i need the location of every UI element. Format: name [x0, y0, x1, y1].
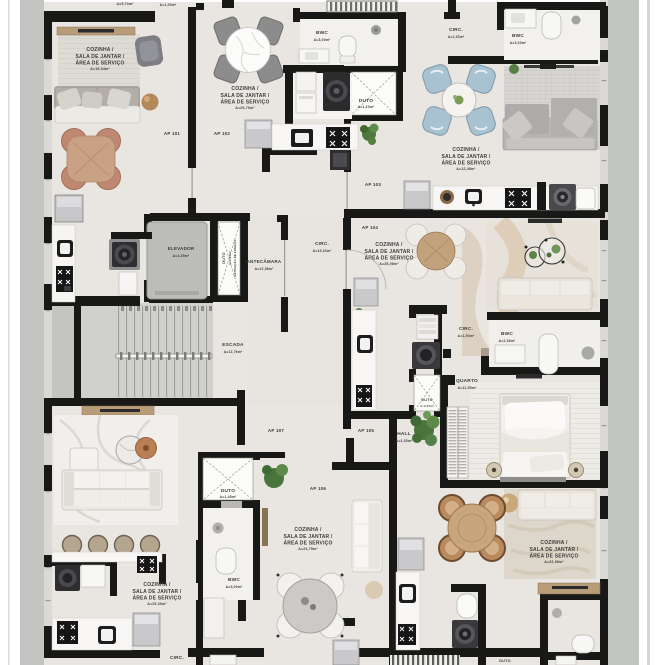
svg-text:CIRC.: CIRC.	[315, 241, 329, 247]
svg-text:A=11,55m²: A=11,55m²	[458, 386, 477, 390]
svg-text:HALL: HALL	[397, 431, 411, 437]
svg-text:A=23,75m²: A=23,75m²	[298, 547, 318, 551]
svg-text:A=3,00m²: A=3,00m²	[510, 41, 527, 45]
svg-text:A=3,00m²: A=3,00m²	[314, 38, 331, 42]
svg-text:ÁREA DE SERVIÇO: ÁREA DE SERVIÇO	[529, 553, 578, 560]
svg-text:BWC: BWC	[228, 577, 240, 583]
svg-text:ÁREA DE SERVIÇO: ÁREA DE SERVIÇO	[364, 255, 413, 262]
svg-text:A=12,76m²: A=12,76m²	[224, 350, 244, 354]
svg-text:ESCADA: ESCADA	[222, 342, 244, 348]
svg-text:A=1,50m²: A=1,50m²	[458, 334, 475, 338]
svg-text:AP 107: AP 107	[268, 428, 284, 433]
svg-text:DUTO: DUTO	[421, 398, 433, 402]
svg-text:ÁREA DE SERVIÇO: ÁREA DE SERVIÇO	[75, 60, 124, 67]
svg-text:COZINHA /: COZINHA /	[452, 147, 480, 153]
svg-text:A=1,48m²: A=1,48m²	[220, 495, 237, 499]
svg-text:CIRC.: CIRC.	[449, 27, 463, 33]
svg-text:SALA DE JANTAR /: SALA DE JANTAR /	[441, 154, 490, 160]
svg-text:AP 106: AP 106	[310, 486, 326, 491]
svg-text:SALA DE JANTAR /: SALA DE JANTAR /	[220, 93, 269, 99]
svg-text:COZINHA /: COZINHA /	[294, 527, 322, 533]
svg-text:DUTO: DUTO	[499, 659, 511, 663]
svg-text:AP 101: AP 101	[164, 131, 180, 136]
svg-text:A=2,30m²: A=2,30m²	[448, 35, 465, 39]
svg-text:CIRC.: CIRC.	[459, 326, 473, 332]
svg-text:A=1,00m²: A=1,00m²	[160, 3, 177, 7]
svg-text:BWC: BWC	[316, 30, 328, 36]
svg-text:A=22,06m²: A=22,06m²	[544, 560, 564, 564]
svg-text:A=12,36m²: A=12,36m²	[255, 267, 275, 271]
svg-text:ÁREA DE SERVIÇO: ÁREA DE SERVIÇO	[441, 160, 490, 167]
svg-text:BWC: BWC	[501, 331, 513, 337]
svg-text:AP 104: AP 104	[362, 225, 378, 230]
svg-text:AP 103: AP 103	[365, 182, 381, 187]
svg-text:COZINHA /: COZINHA /	[86, 47, 114, 53]
svg-text:COZINHA /: COZINHA /	[231, 86, 259, 92]
svg-text:A=12,48m²: A=12,48m²	[456, 167, 476, 171]
svg-text:SALA DE JANTAR /: SALA DE JANTAR /	[529, 547, 578, 553]
svg-text:A=2,36m²: A=2,36m²	[499, 339, 516, 343]
svg-text:ELEVADOR: ELEVADOR	[168, 246, 195, 251]
svg-text:BWC: BWC	[512, 33, 524, 39]
svg-text:DUTO: DUTO	[221, 488, 235, 494]
svg-text:A=1,23m²: A=1,23m²	[358, 105, 375, 109]
svg-text:DUTO: DUTO	[222, 252, 226, 264]
svg-text:DUTO: DUTO	[359, 98, 373, 104]
svg-text:A=15,34m²: A=15,34m²	[90, 67, 110, 71]
svg-text:A=2,25m²: A=2,25m²	[173, 254, 190, 258]
svg-text:A=29,70m²: A=29,70m²	[235, 106, 255, 110]
svg-text:ÁREA DE SERVIÇO: ÁREA DE SERVIÇO	[220, 99, 269, 106]
svg-text:ÁREA DE SERVIÇO: ÁREA DE SERVIÇO	[132, 595, 181, 602]
svg-text:A=25,30m²: A=25,30m²	[147, 602, 167, 606]
svg-text:A=2,35m²: A=2,35m²	[396, 439, 413, 443]
svg-text:A=5,73m²: A=5,73m²	[117, 2, 134, 6]
svg-text:ÁREA DE SERVIÇO: ÁREA DE SERVIÇO	[283, 540, 332, 547]
svg-text:ANTECÂMARA: ANTECÂMARA	[247, 258, 282, 264]
svg-text:EXTRAÇÃO DE FUMAÇA: EXTRAÇÃO DE FUMAÇA	[232, 240, 237, 277]
svg-text:SALA DE JANTAR /: SALA DE JANTAR /	[75, 54, 124, 60]
svg-text:AP 105: AP 105	[358, 428, 374, 433]
svg-text:QUARTO: QUARTO	[456, 378, 478, 384]
svg-text:SALA DE JANTAR /: SALA DE JANTAR /	[364, 249, 413, 255]
svg-text:COZINHA /: COZINHA /	[143, 582, 171, 588]
svg-text:CIRC.: CIRC.	[170, 655, 184, 661]
svg-text:A=2,25m²: A=2,25m²	[228, 251, 232, 265]
svg-text:COZINHA /: COZINHA /	[375, 242, 403, 248]
svg-text:SALA DE JANTAR /: SALA DE JANTAR /	[283, 534, 332, 540]
svg-text:AP 102: AP 102	[214, 131, 230, 136]
svg-text:A=15,23m²: A=15,23m²	[313, 249, 333, 253]
svg-text:COZINHA /: COZINHA /	[540, 540, 568, 546]
svg-text:A=25,06m²: A=25,06m²	[379, 262, 399, 266]
svg-text:SALA DE JANTAR /: SALA DE JANTAR /	[132, 589, 181, 595]
svg-text:A=5,00m²: A=5,00m²	[226, 585, 243, 589]
svg-text:A=0,57m²: A=0,57m²	[420, 404, 434, 408]
